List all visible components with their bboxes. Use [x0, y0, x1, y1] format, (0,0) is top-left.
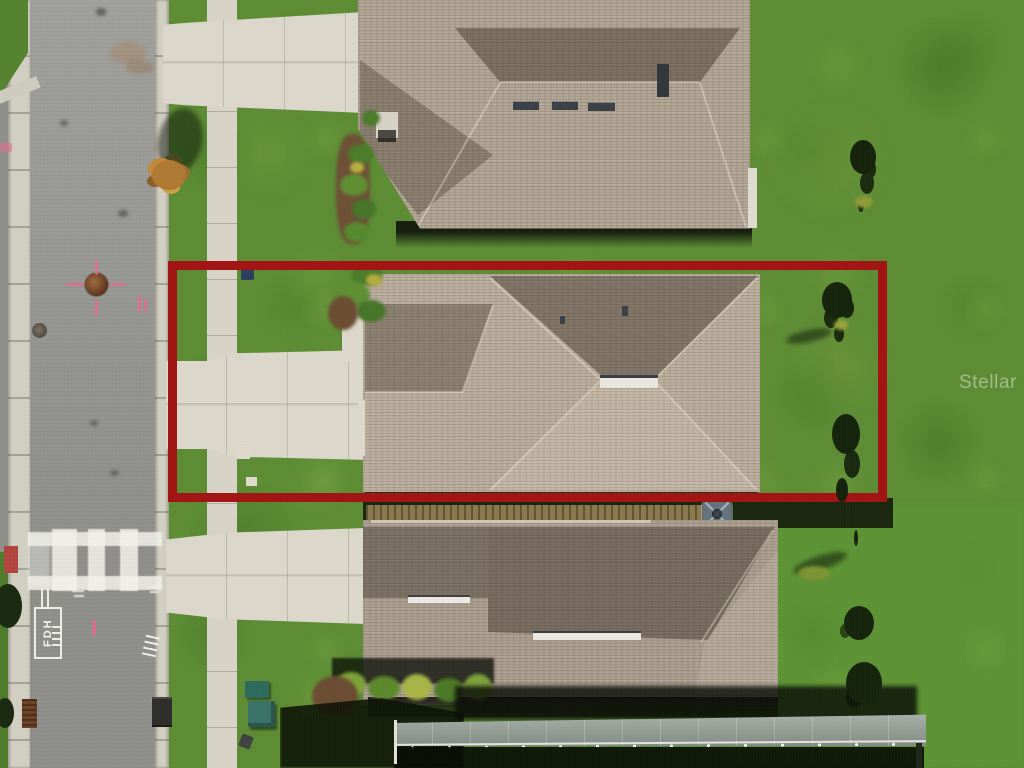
manhole-cover: [85, 273, 108, 296]
tree-shadow: [791, 548, 849, 579]
roof-hip-line: [699, 83, 747, 227]
survey-paint-mark: [66, 283, 84, 286]
tree-underbrush: [798, 566, 830, 580]
utility-pad: [237, 446, 250, 459]
ground-fixture: [238, 733, 254, 749]
paint-scribble: [41, 589, 51, 609]
tree: [850, 140, 876, 174]
grass-patch-backyard: [740, 255, 1024, 505]
trash-bin: [241, 263, 254, 280]
survey-paint-mark: [95, 259, 98, 275]
gutter-line: [371, 520, 651, 523]
crosswalk-bar: [120, 529, 138, 591]
utility-box: [248, 701, 275, 727]
enclosure-corner-post: [916, 743, 922, 768]
tree-underbrush: [855, 196, 873, 208]
aerial-photo: FDH: [0, 0, 1024, 768]
curbside-box: [22, 699, 37, 728]
tree-small: [846, 662, 882, 704]
top-house-roof: [358, 0, 750, 238]
autumn-tree: [152, 160, 186, 190]
curb-ramp-mat: [4, 546, 18, 573]
shrub: [356, 300, 386, 322]
paint-scribble: [52, 626, 62, 646]
left-curb: [8, 0, 32, 768]
survey-paint-mark: [138, 296, 141, 312]
utility-pad: [246, 477, 257, 486]
survey-paint-mark: [92, 620, 96, 636]
crosswalk: [28, 529, 162, 591]
utility-box: [245, 681, 269, 698]
driveway-middle-house: [166, 350, 368, 460]
shrub: [434, 678, 464, 702]
enclosure-end-post: [394, 720, 397, 764]
accent-plant: [350, 162, 364, 173]
accent-plant: [366, 274, 382, 286]
survey-paint-mark: [95, 300, 98, 316]
tree-shadow: [785, 325, 832, 346]
roof-vent: [552, 101, 578, 110]
shrub: [464, 674, 492, 700]
shrub: [340, 174, 368, 196]
roof-vent-pipe: [560, 315, 565, 324]
shrub: [344, 222, 370, 242]
paint-dash: [72, 590, 84, 592]
gutter-fascia: [358, 400, 365, 456]
driveway-top-house: [163, 10, 362, 116]
survey-paint-mark: [0, 143, 12, 152]
ridge-skylight: [533, 631, 641, 640]
gutter-fascia: [748, 168, 757, 228]
survey-paint-mark: [144, 299, 147, 312]
crosswalk-bar: [52, 529, 77, 591]
crosswalk-bar: [88, 529, 105, 591]
tree-overlapping-boundary: [832, 414, 860, 454]
storm-drain: [152, 697, 172, 727]
shrub: [402, 674, 432, 700]
paint-dash: [74, 595, 84, 597]
shrub: [348, 144, 374, 164]
middle-house-roof: [363, 274, 760, 492]
mls-watermark: Stellar MLS: [959, 372, 1024, 394]
shrub: [362, 110, 380, 126]
shrub: [368, 676, 400, 700]
ridge-skylight: [600, 375, 658, 388]
roof-vent: [588, 102, 615, 111]
entry-shadow: [378, 130, 396, 142]
tree-underbrush: [834, 320, 848, 330]
ridge-skylight: [408, 595, 470, 603]
driveway-bottom-house: [166, 528, 365, 624]
shrub-bed-middle-house: [326, 256, 398, 336]
paint-dash: [150, 591, 159, 593]
survey-paint-mark: [110, 283, 126, 286]
under-enclosure-shadow: [394, 747, 924, 768]
shrub-bed-top-house: [330, 104, 400, 244]
tree-small: [844, 606, 874, 640]
shrub: [352, 199, 376, 219]
paint-dash: [148, 586, 159, 588]
chimney: [657, 64, 669, 97]
mulch-bed: [328, 296, 358, 330]
utility-cover: [32, 323, 47, 338]
roof-vent: [513, 101, 539, 110]
roof-vent-pipe: [622, 306, 628, 316]
tree-in-lot: [822, 282, 852, 318]
roof-garage-ridge: [365, 391, 463, 393]
roof-hip-line: [500, 81, 700, 83]
